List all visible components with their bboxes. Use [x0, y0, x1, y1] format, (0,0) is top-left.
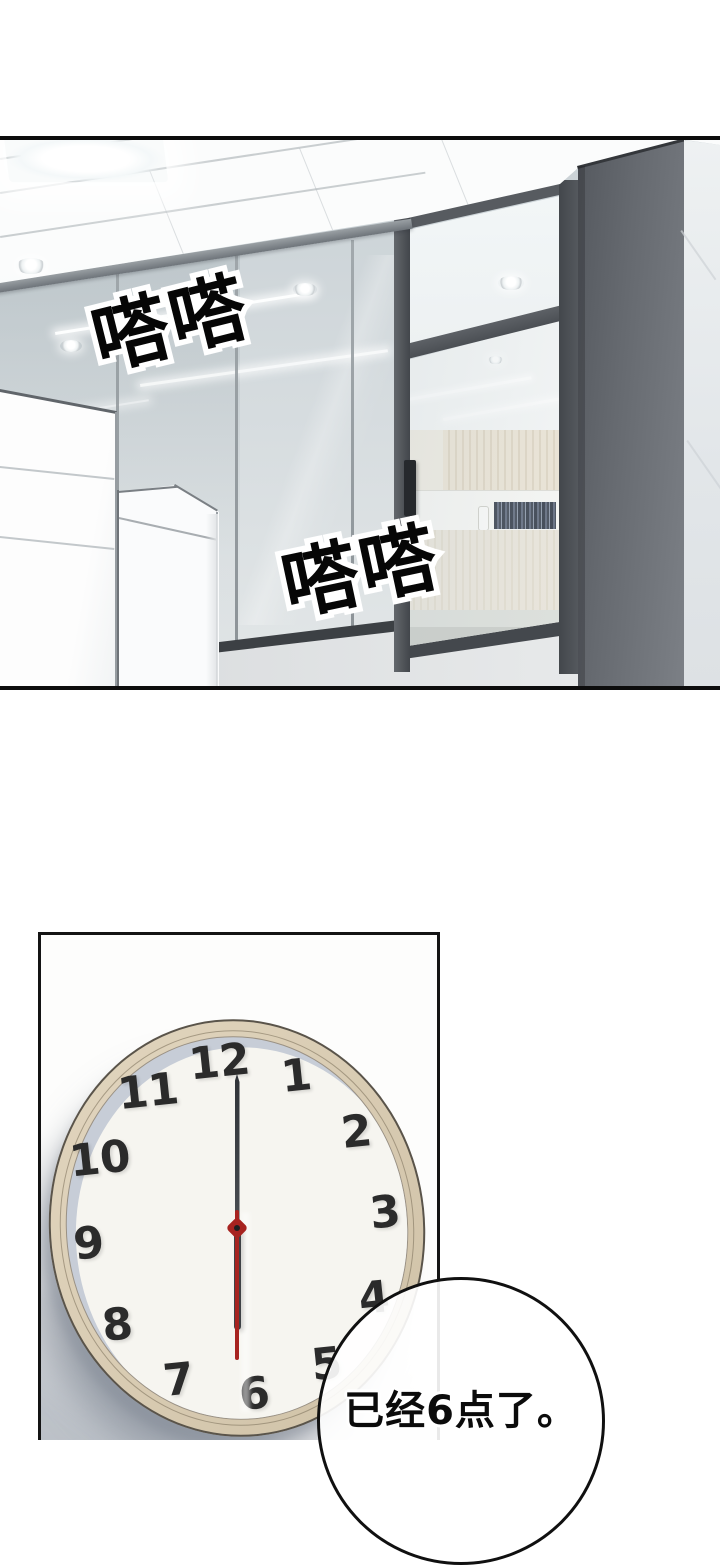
- clock-numeral-1: 1: [279, 1049, 315, 1103]
- ceiling-light-icon: [293, 283, 317, 296]
- clock-numeral-7: 7: [161, 1353, 197, 1407]
- speech-bubble: 已经6点了。: [317, 1277, 605, 1565]
- door-handle: [404, 460, 416, 516]
- right-wall: [684, 140, 720, 686]
- clock-numeral-9: 9: [71, 1217, 107, 1271]
- office-scene-panel: 嗒嗒 嗒嗒 嗒嗒 嗒嗒: [0, 136, 720, 690]
- ceiling-light-icon: [60, 340, 82, 352]
- clock-numeral-10: 10: [67, 1130, 133, 1187]
- hand-highlight: [241, 1212, 250, 1412]
- clock-numeral-12: 12: [186, 1033, 252, 1090]
- dialogue-text: 已经6点了。: [344, 1378, 578, 1436]
- clock-numeral-8: 8: [100, 1298, 136, 1352]
- ceiling-light-icon: [498, 276, 524, 290]
- clock-numeral-11: 11: [115, 1063, 181, 1120]
- foreground-cabinet: [118, 485, 219, 686]
- wall-pillar: [578, 140, 686, 686]
- door-right-frame: [559, 180, 580, 674]
- pillar-side-shading: [578, 166, 585, 686]
- clock-hub-dot: [234, 1225, 240, 1231]
- clock-numeral-3: 3: [367, 1185, 403, 1239]
- clock-numeral-2: 2: [339, 1105, 375, 1159]
- cabinet-gap-line: [117, 490, 119, 686]
- cabinet-side-shading: [206, 514, 218, 686]
